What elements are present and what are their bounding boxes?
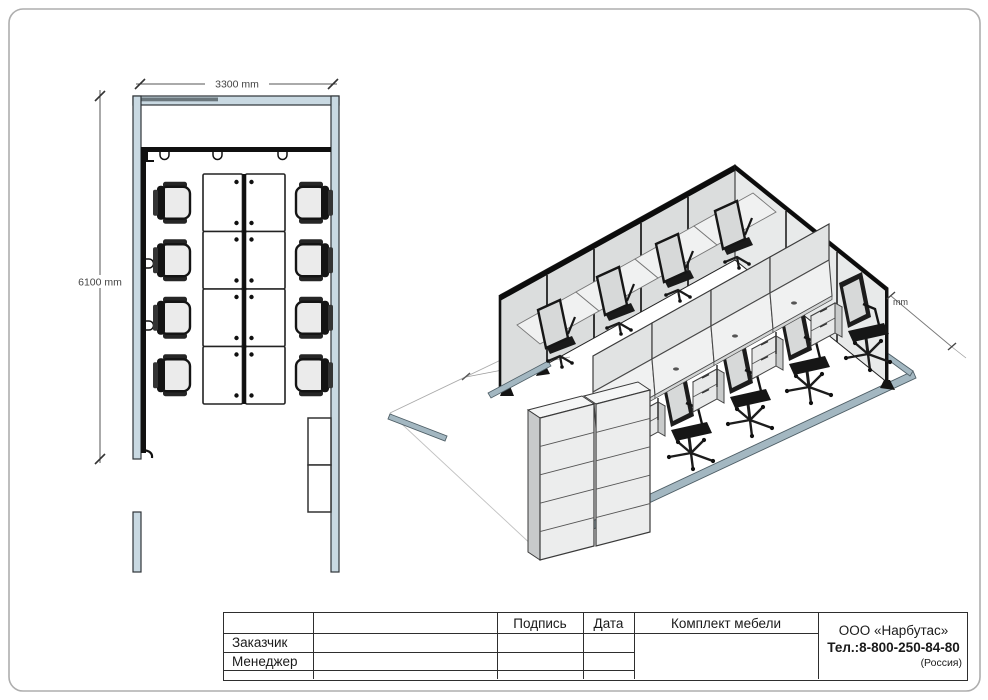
- plan-height-label: 6100 mm: [78, 277, 122, 289]
- signature-column-header: Подпись: [497, 613, 583, 633]
- company-country: (Россия): [818, 657, 969, 669]
- plan-chair: [296, 354, 333, 396]
- dimension-width: 3300 mm: [135, 77, 338, 91]
- floor-plan-2d: 3300 mm 6100 mm: [68, 77, 339, 572]
- page-border: [9, 9, 980, 691]
- project-title: Комплект мебели: [634, 613, 818, 633]
- iso-cabinets: [528, 382, 650, 560]
- date-column-header: Дата: [583, 613, 634, 633]
- dimension-height: 6100 mm: [68, 90, 132, 464]
- drawing-canvas: 3300 mm 6100 mm: [0, 0, 988, 700]
- iso-dim-label: mm: [893, 297, 908, 307]
- customer-row-label: Заказчик: [224, 633, 321, 652]
- plan-chair: [296, 239, 333, 281]
- plan-cabinets: [308, 418, 331, 512]
- company-name: ООО «Нарбутас»: [818, 623, 969, 638]
- iso-dimension: mm: [887, 292, 966, 358]
- company-info: ООО «Нарбутас» Тел.:8-800-250-84-80 (Рос…: [818, 613, 969, 679]
- plan-width-label: 3300 mm: [215, 79, 259, 91]
- plan-desk-cluster: [203, 174, 285, 404]
- plan-chair: [153, 239, 190, 281]
- plan-chair: [296, 297, 333, 339]
- plan-chair: [153, 182, 190, 224]
- plan-chair: [153, 354, 190, 396]
- title-block: Подпись Дата Комплект мебели Заказчик Ме…: [223, 612, 968, 681]
- manager-row-label: Менеджер: [224, 652, 321, 670]
- plan-chair: [153, 297, 190, 339]
- company-phone: Тел.:8-800-250-84-80: [818, 640, 969, 655]
- plan-chair: [296, 182, 333, 224]
- drawing-sheet: 3300 mm 6100 mm: [0, 0, 988, 700]
- iso-view-3d: mm: [388, 165, 966, 560]
